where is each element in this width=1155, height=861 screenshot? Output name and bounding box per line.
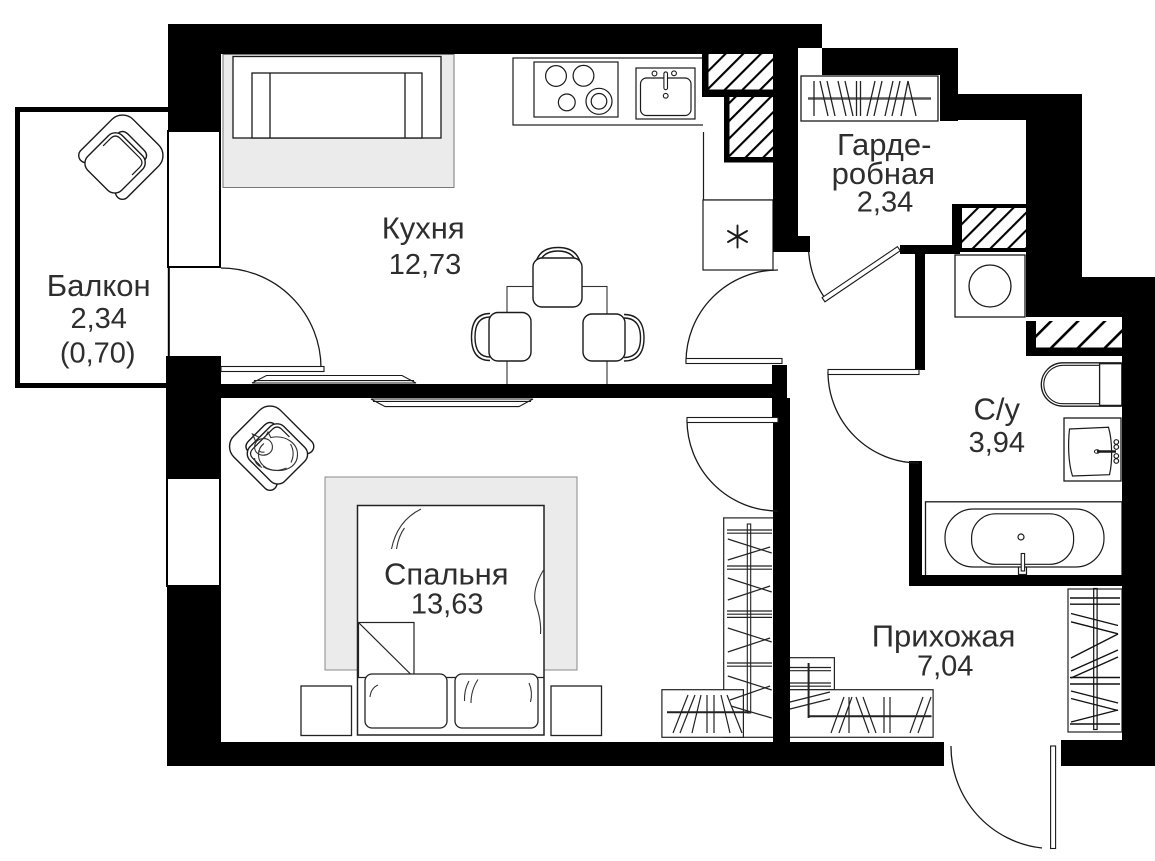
svg-text:(0,70): (0,70) <box>60 338 136 370</box>
svg-text:Кухня: Кухня <box>382 210 465 245</box>
svg-text:С/у: С/у <box>974 391 1021 426</box>
svg-text:Прихожая: Прихожая <box>872 619 1016 654</box>
svg-text:12,73: 12,73 <box>389 249 462 281</box>
svg-text:13,63: 13,63 <box>411 589 484 621</box>
svg-text:2,34: 2,34 <box>70 303 126 335</box>
svg-text:Спальня: Спальня <box>384 557 509 592</box>
svg-text:7,04: 7,04 <box>917 651 973 683</box>
svg-text:Балкон: Балкон <box>47 268 151 303</box>
svg-text:2,34: 2,34 <box>857 187 913 219</box>
svg-text:3,94: 3,94 <box>969 427 1025 459</box>
